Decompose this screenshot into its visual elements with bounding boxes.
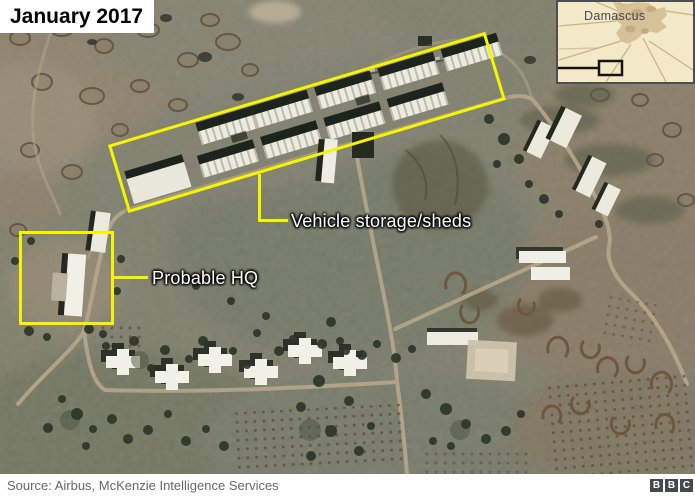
bbc-logo: B B C (650, 479, 693, 492)
hq-annotation-box (19, 231, 114, 325)
sheds-leader-line-horizontal (258, 219, 288, 222)
sheds-leader-line-vertical (258, 174, 261, 222)
bbc-logo-block-2: B (665, 479, 678, 492)
bbc-logo-block-1: B (650, 479, 663, 492)
date-title: January 2017 (0, 0, 154, 33)
source-credit: Source: Airbus, McKenzie Intelligence Se… (7, 474, 279, 498)
satellite-photo: Vehicle storage/sheds Probable HQ Januar… (0, 0, 695, 474)
bbc-logo-block-3: C (680, 479, 693, 492)
hq-label: Probable HQ (152, 269, 258, 287)
hq-leader-line (114, 276, 148, 279)
sheds-label: Vehicle storage/sheds (291, 212, 471, 230)
bbc-satellite-graphic: Vehicle storage/sheds Probable HQ Januar… (0, 0, 695, 498)
inset-map: Damascus (556, 0, 695, 84)
footer-bar: Source: Airbus, McKenzie Intelligence Se… (0, 474, 695, 498)
inset-city-label: Damascus (584, 9, 645, 23)
